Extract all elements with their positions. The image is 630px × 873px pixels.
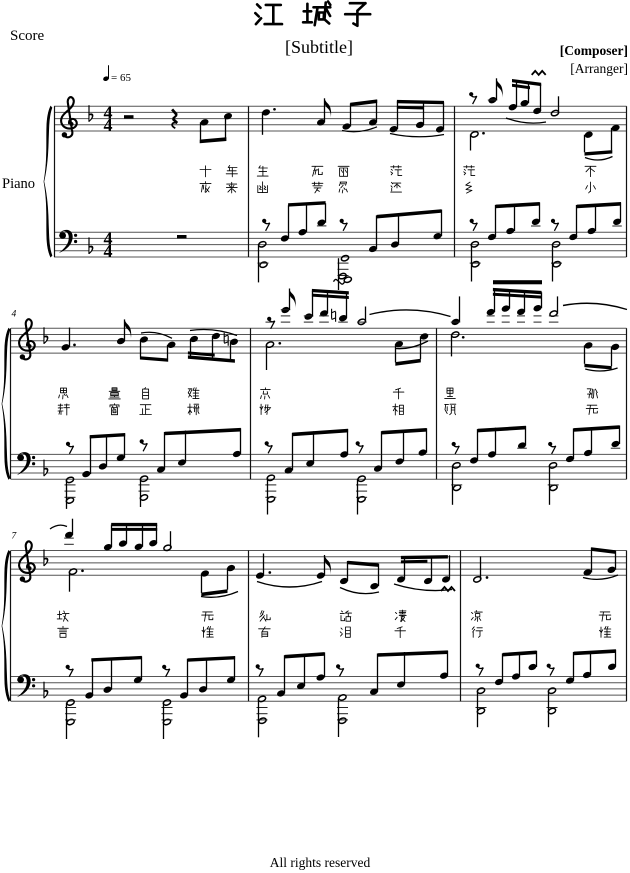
svg-text:All rights reserved: All rights reserved (270, 855, 371, 870)
svg-text:4: 4 (104, 241, 113, 261)
svg-text:[Subtitle]: [Subtitle] (285, 37, 353, 57)
svg-text:7: 7 (12, 532, 18, 542)
svg-text:Score: Score (10, 28, 44, 44)
svg-text:= 65: = 65 (111, 72, 131, 84)
svg-text:[Arranger]: [Arranger] (570, 61, 628, 76)
svg-text:4: 4 (12, 310, 17, 320)
svg-text:Piano: Piano (2, 176, 35, 192)
svg-text:4: 4 (104, 115, 113, 135)
svg-text:[Composer]: [Composer] (560, 43, 628, 58)
